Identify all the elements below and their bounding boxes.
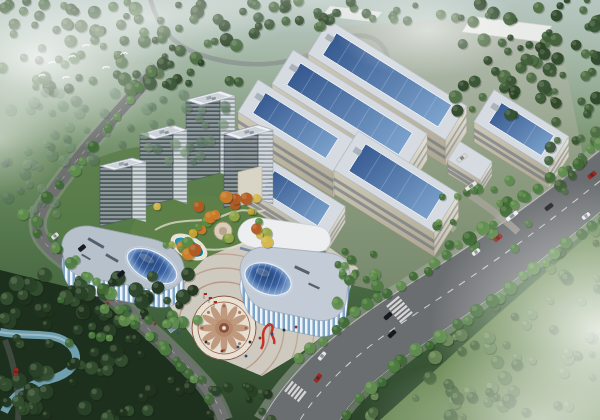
tree xyxy=(342,410,352,420)
tree xyxy=(118,141,126,149)
tree xyxy=(50,243,60,253)
tree xyxy=(33,229,42,238)
tree-highlight xyxy=(578,98,581,101)
tree xyxy=(589,50,596,57)
tree xyxy=(526,73,536,83)
tree-highlight xyxy=(224,383,228,387)
tree-highlight xyxy=(507,77,511,81)
tree-highlight xyxy=(194,202,199,207)
tree-highlight xyxy=(197,138,202,143)
tree-highlight xyxy=(335,262,338,265)
tree xyxy=(204,394,214,404)
tree-highlight xyxy=(536,95,540,99)
tree-highlight xyxy=(97,333,101,337)
tree xyxy=(450,219,456,225)
pedestrian xyxy=(249,341,252,344)
tree xyxy=(246,397,252,403)
tree xyxy=(166,119,174,127)
tree-highlight xyxy=(221,102,226,107)
tree xyxy=(137,350,145,358)
tree xyxy=(83,272,92,281)
tree xyxy=(577,134,584,141)
tree xyxy=(53,199,60,206)
tree xyxy=(225,76,235,86)
tree xyxy=(537,80,551,94)
tree-highlight xyxy=(242,194,247,199)
tree-highlight xyxy=(389,361,394,366)
tree-highlight xyxy=(339,318,344,323)
tree-highlight xyxy=(68,286,72,290)
tree xyxy=(491,67,500,76)
tree xyxy=(338,317,349,328)
tree-highlight xyxy=(32,217,37,222)
tree-highlight xyxy=(262,237,267,242)
tree-highlight xyxy=(211,211,215,215)
tree xyxy=(568,172,576,180)
tree-highlight xyxy=(225,235,229,239)
tree-highlight xyxy=(150,121,153,124)
tree xyxy=(65,339,74,348)
tree-highlight xyxy=(555,138,558,141)
tree-highlight xyxy=(174,358,178,362)
tree-highlight xyxy=(574,160,579,165)
tree-highlight xyxy=(176,387,180,391)
tree-highlight xyxy=(206,411,210,415)
tree-highlight xyxy=(19,391,23,395)
tree-highlight xyxy=(13,397,18,402)
tree-highlight xyxy=(505,177,509,181)
tree xyxy=(261,236,273,248)
tree-highlight xyxy=(43,411,47,415)
tree-highlight xyxy=(190,245,195,250)
tree-highlight xyxy=(578,135,581,138)
tree-highlight xyxy=(510,92,514,96)
tree-highlight xyxy=(11,309,16,314)
tree-highlight xyxy=(0,314,5,319)
tree-highlight xyxy=(440,194,443,197)
tree-highlight xyxy=(264,391,268,395)
mandala-dot xyxy=(222,304,225,307)
tree xyxy=(355,393,364,402)
tree xyxy=(2,397,12,407)
tree xyxy=(223,382,233,392)
tree-highlight xyxy=(230,212,235,217)
pedestrian xyxy=(295,326,298,329)
tree xyxy=(170,139,181,150)
tree xyxy=(509,91,518,100)
garden-pavilion-center xyxy=(219,227,227,235)
tree-highlight xyxy=(101,305,105,309)
tree xyxy=(344,275,354,285)
tree-highlight xyxy=(591,93,597,99)
tree-highlight xyxy=(453,106,458,111)
tree-highlight xyxy=(552,99,557,104)
tree-highlight xyxy=(139,394,143,398)
tree-highlight xyxy=(396,355,401,360)
tree xyxy=(190,158,197,165)
tree xyxy=(583,110,591,118)
tree-highlight xyxy=(42,193,47,198)
tree-highlight xyxy=(518,46,521,49)
tree-highlight xyxy=(130,315,135,320)
tree xyxy=(164,156,173,165)
tree xyxy=(17,208,29,220)
tree xyxy=(469,106,475,112)
tree-highlight xyxy=(98,284,103,289)
tree xyxy=(445,240,455,250)
tree xyxy=(162,319,171,328)
mandala-dot xyxy=(207,311,210,314)
tree-highlight xyxy=(103,366,108,371)
tree-highlight xyxy=(19,406,22,409)
tree xyxy=(147,271,158,282)
pedestrian xyxy=(237,346,240,349)
tree xyxy=(77,401,92,416)
tree xyxy=(318,337,327,346)
tree xyxy=(45,339,54,348)
tree-highlight xyxy=(221,192,226,197)
tree-highlight xyxy=(188,69,191,72)
tree xyxy=(96,332,106,342)
tree xyxy=(144,143,153,152)
tree-highlight xyxy=(183,249,188,254)
tree xyxy=(559,72,565,78)
tree xyxy=(586,145,594,153)
tree xyxy=(549,69,556,76)
tree xyxy=(545,172,556,183)
tree xyxy=(73,325,83,335)
tree-highlight xyxy=(226,77,230,81)
tree-highlight xyxy=(165,157,169,161)
tree xyxy=(145,332,155,342)
tree-highlight xyxy=(547,30,550,33)
tree xyxy=(168,241,174,247)
tree-highlight xyxy=(86,363,92,369)
tree-highlight xyxy=(383,289,387,293)
pedestrian xyxy=(142,317,145,320)
tree xyxy=(88,154,99,165)
tower-side-facade xyxy=(132,158,146,222)
tree xyxy=(218,119,228,129)
tree-highlight xyxy=(79,158,82,161)
tree-highlight xyxy=(258,390,262,394)
tree xyxy=(220,191,233,204)
tree xyxy=(65,257,77,269)
mandala-center-dot xyxy=(222,326,226,330)
tree-highlight xyxy=(553,54,558,59)
tree-highlight xyxy=(194,316,198,320)
tree xyxy=(78,157,86,165)
tree-highlight xyxy=(164,298,167,301)
tree-highlight xyxy=(102,413,107,418)
tree-highlight xyxy=(470,77,475,82)
tree xyxy=(100,304,110,314)
red-flag xyxy=(209,297,212,299)
pedestrian xyxy=(205,341,208,344)
tree-highlight xyxy=(580,7,583,10)
tree-highlight xyxy=(126,336,129,339)
tree-highlight xyxy=(119,142,122,145)
tree-highlight xyxy=(546,173,551,178)
tree-highlight xyxy=(109,279,113,283)
tree xyxy=(554,137,561,144)
tree-highlight xyxy=(584,111,587,114)
tree-highlight xyxy=(572,41,576,45)
tree-highlight xyxy=(120,409,124,413)
tree xyxy=(176,362,186,372)
tree-highlight xyxy=(426,342,430,346)
tree xyxy=(436,219,442,225)
pedestrian xyxy=(177,332,180,335)
tree-highlight xyxy=(154,145,158,149)
tree xyxy=(263,390,272,399)
tree-highlight xyxy=(39,200,42,203)
tree xyxy=(97,283,109,295)
tree xyxy=(18,405,25,412)
tree-highlight xyxy=(552,11,557,16)
tree-highlight xyxy=(169,242,172,245)
tree-highlight xyxy=(425,268,429,272)
red-flag xyxy=(214,301,217,303)
tree-highlight xyxy=(517,63,522,68)
tree xyxy=(128,282,143,297)
tree xyxy=(520,54,532,66)
tree-highlight xyxy=(167,119,170,122)
tree xyxy=(167,376,174,383)
tree-highlight xyxy=(503,198,508,203)
tree xyxy=(31,216,42,227)
tree-highlight xyxy=(89,323,92,326)
tree-highlight xyxy=(92,389,97,394)
pedestrian xyxy=(154,323,157,326)
tree-highlight xyxy=(545,157,549,161)
tree xyxy=(579,6,587,14)
tree xyxy=(12,334,20,342)
tree-highlight xyxy=(526,42,529,45)
tree-highlight xyxy=(497,201,500,204)
mandala-dot xyxy=(238,311,241,314)
tree xyxy=(88,332,95,339)
tree-highlight xyxy=(319,338,323,342)
tree xyxy=(192,315,202,325)
tree-highlight xyxy=(243,383,246,386)
tree-highlight xyxy=(91,348,95,352)
tree xyxy=(163,242,169,248)
tree-highlight xyxy=(39,269,45,275)
tree xyxy=(194,223,201,230)
tree xyxy=(551,10,563,22)
tree-highlight xyxy=(74,326,78,330)
tree-highlight xyxy=(430,259,435,264)
tree xyxy=(224,233,234,243)
tree-highlight xyxy=(177,243,181,247)
tree-highlight xyxy=(589,21,595,27)
tree xyxy=(538,48,551,61)
tree xyxy=(178,90,188,100)
tree-highlight xyxy=(69,379,73,383)
tree xyxy=(252,194,261,203)
tree xyxy=(74,287,87,300)
tree-highlight xyxy=(46,340,50,344)
tree-highlight xyxy=(110,345,117,352)
tree-highlight xyxy=(3,398,7,402)
tree-highlight xyxy=(379,379,383,383)
tree-highlight xyxy=(581,72,585,76)
tree-highlight xyxy=(205,136,210,141)
tree xyxy=(370,273,378,281)
tree xyxy=(552,88,558,94)
tree-highlight xyxy=(171,140,176,145)
tree xyxy=(361,298,373,310)
tree-highlight xyxy=(342,249,345,252)
tree xyxy=(496,200,503,207)
tree-highlight xyxy=(370,274,373,277)
tree-highlight xyxy=(189,286,194,291)
tree-highlight xyxy=(163,243,166,246)
tree-highlight xyxy=(582,50,586,54)
tree xyxy=(198,106,206,114)
tree-highlight xyxy=(196,116,199,119)
tree-highlight xyxy=(364,277,367,280)
tree xyxy=(55,181,63,189)
tree-highlight xyxy=(71,166,76,171)
tree-highlight xyxy=(66,258,71,263)
tree xyxy=(304,342,316,354)
tree-highlight xyxy=(145,144,149,148)
tree xyxy=(229,211,240,222)
tree xyxy=(449,90,462,103)
vehicle-cabin xyxy=(14,370,18,373)
tree-highlight xyxy=(143,406,148,411)
tree xyxy=(142,405,154,417)
tree-highlight xyxy=(585,24,588,27)
residential-tower-1 xyxy=(100,158,146,226)
tree xyxy=(181,102,192,113)
tree xyxy=(0,292,14,306)
tree xyxy=(41,191,53,203)
tree-highlight xyxy=(177,291,183,297)
tree xyxy=(525,41,533,49)
tree-highlight xyxy=(35,304,42,311)
tree xyxy=(114,305,124,315)
tree xyxy=(144,315,153,324)
tree xyxy=(451,105,463,117)
tree-highlight xyxy=(259,409,262,412)
tree-highlight xyxy=(186,81,189,84)
pedestrian xyxy=(259,337,262,340)
tree xyxy=(181,268,195,282)
tree-highlight xyxy=(206,212,211,217)
tree-highlight xyxy=(70,359,75,364)
tree-highlight xyxy=(30,364,36,370)
tree xyxy=(149,120,157,128)
tree xyxy=(551,117,561,127)
tree xyxy=(204,135,215,146)
tree-highlight xyxy=(459,81,464,86)
tree xyxy=(90,387,103,400)
tree-highlight xyxy=(252,225,256,229)
tree xyxy=(332,297,344,309)
tree-highlight xyxy=(54,200,57,203)
tree xyxy=(153,203,160,210)
tree-highlight xyxy=(534,185,538,189)
tree-highlight xyxy=(104,326,110,332)
tree-highlight xyxy=(522,55,527,60)
tree-highlight xyxy=(446,241,450,245)
tree xyxy=(551,98,562,109)
tree-highlight xyxy=(590,51,593,54)
tree-highlight xyxy=(168,377,171,380)
tree xyxy=(248,208,254,214)
tree-highlight xyxy=(182,104,187,109)
tree-highlight xyxy=(219,120,223,124)
tree xyxy=(198,60,205,67)
tree-highlight xyxy=(371,252,374,255)
tree-highlight xyxy=(247,397,250,400)
pedestrian xyxy=(271,333,274,336)
tree-highlight xyxy=(267,416,271,420)
tree xyxy=(342,248,349,255)
tree-highlight xyxy=(333,326,337,330)
tree-highlight xyxy=(587,146,590,149)
tree xyxy=(205,410,214,419)
tree-highlight xyxy=(348,256,352,260)
tree xyxy=(140,130,149,139)
tree-highlight xyxy=(146,333,150,337)
tree-highlight xyxy=(89,156,94,161)
tree-highlight xyxy=(205,395,209,399)
tree xyxy=(571,40,582,51)
tree-highlight xyxy=(256,219,259,222)
pedestrian xyxy=(221,350,224,353)
tree-highlight xyxy=(343,411,347,415)
tree-highlight xyxy=(455,241,458,244)
tree xyxy=(210,210,220,220)
tree-highlight xyxy=(161,345,166,350)
tree xyxy=(195,151,205,161)
tree-highlight xyxy=(589,69,593,73)
tree-highlight xyxy=(183,238,188,243)
tree-highlight xyxy=(154,204,157,207)
red-flag xyxy=(204,293,207,295)
tree-highlight xyxy=(163,320,167,324)
tree xyxy=(491,186,498,193)
tree-highlight xyxy=(52,245,56,249)
tree xyxy=(245,384,253,392)
tree xyxy=(469,75,481,87)
tree xyxy=(130,320,139,329)
tree-highlight xyxy=(85,273,89,277)
tree-highlight xyxy=(436,220,439,223)
tree-highlight xyxy=(212,387,216,391)
tree xyxy=(28,362,43,377)
mandala-dot xyxy=(244,326,247,329)
tree-highlight xyxy=(539,81,545,87)
tree-highlight xyxy=(145,316,149,320)
tower-side-facade xyxy=(173,125,187,204)
tree-highlight xyxy=(153,283,158,288)
tree-highlight xyxy=(79,307,85,313)
tree-highlight xyxy=(132,335,136,339)
tree xyxy=(198,375,206,383)
tree-highlight xyxy=(40,386,46,392)
tree xyxy=(88,323,96,331)
tree xyxy=(258,408,265,415)
tree xyxy=(551,52,564,65)
tree-highlight xyxy=(550,70,553,73)
scene-svg xyxy=(0,0,600,420)
tree-highlight xyxy=(95,306,99,310)
